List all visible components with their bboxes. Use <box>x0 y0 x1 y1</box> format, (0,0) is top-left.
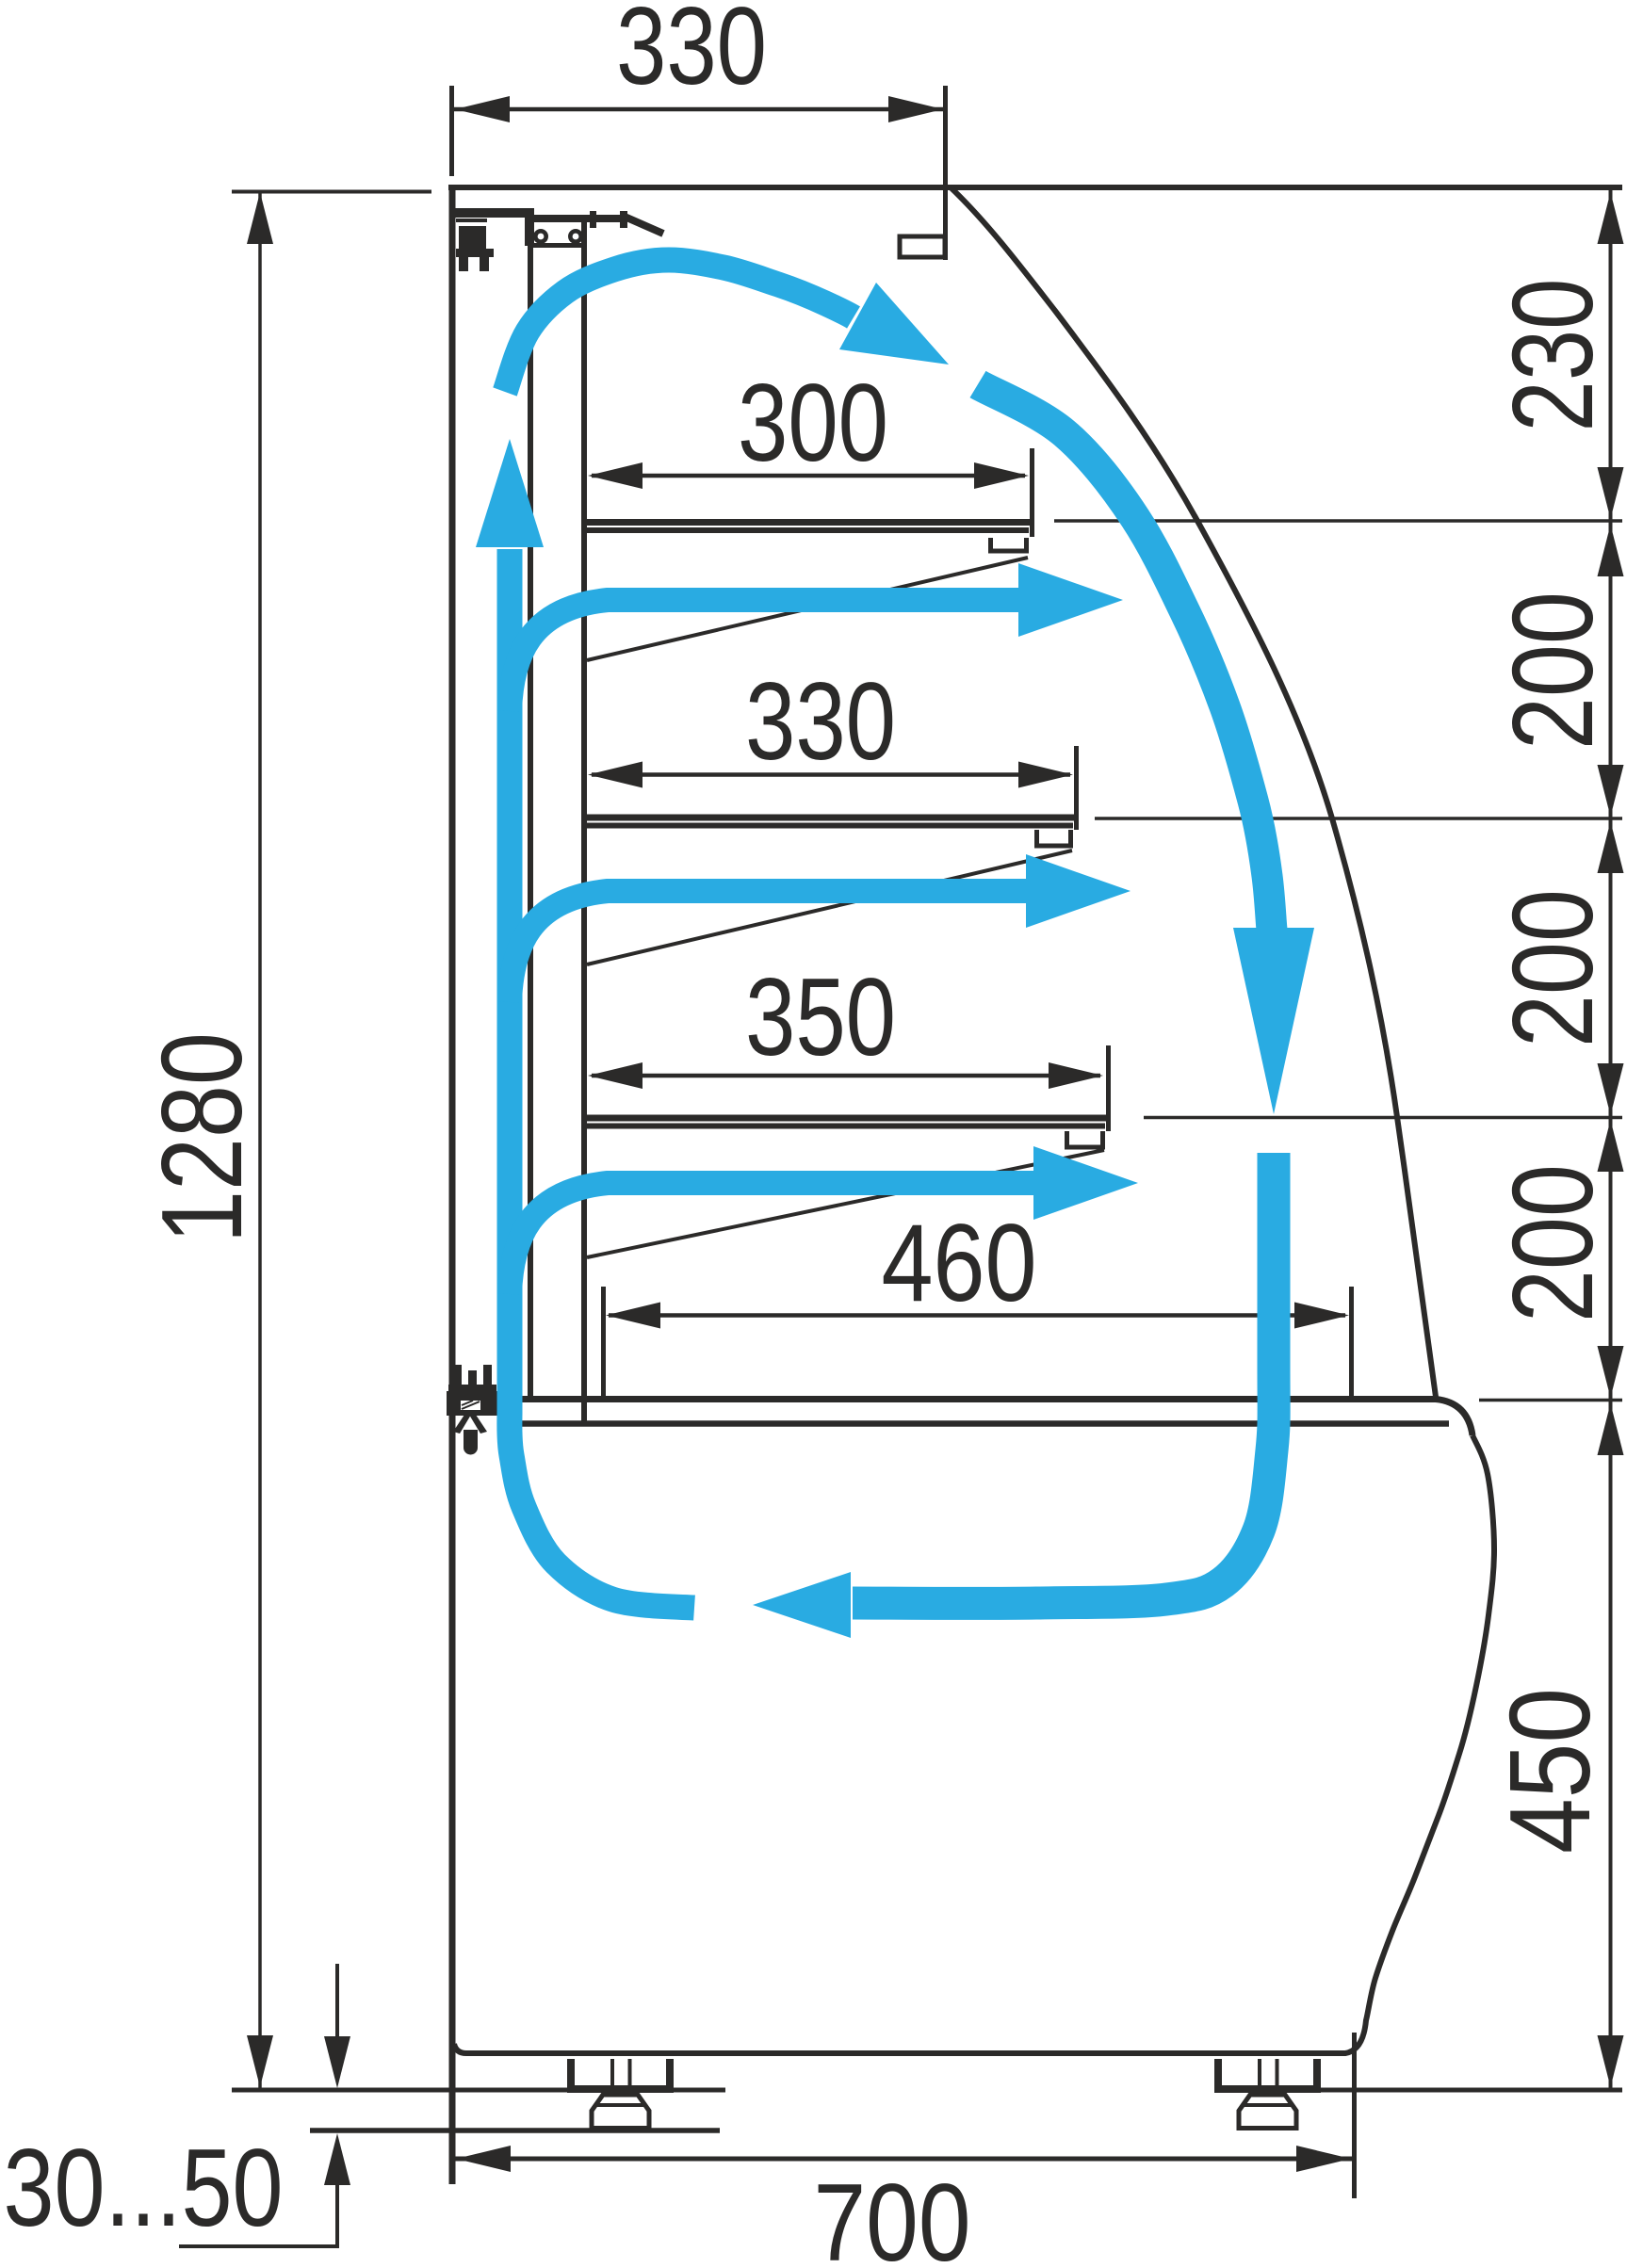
svg-text:330: 330 <box>745 659 896 783</box>
svg-text:200: 200 <box>1488 591 1617 750</box>
svg-text:460: 460 <box>882 1201 1037 1324</box>
svg-text:450: 450 <box>1486 1688 1614 1854</box>
svg-text:300: 300 <box>738 361 888 484</box>
svg-text:700: 700 <box>814 2161 971 2268</box>
svg-text:1280: 1280 <box>138 1032 266 1243</box>
svg-text:200: 200 <box>1488 1164 1617 1322</box>
svg-text:350: 350 <box>745 955 896 1078</box>
svg-text:200: 200 <box>1488 889 1617 1047</box>
svg-text:30...50: 30...50 <box>4 2126 284 2249</box>
svg-text:230: 230 <box>1488 279 1617 432</box>
svg-text:330: 330 <box>616 0 767 107</box>
